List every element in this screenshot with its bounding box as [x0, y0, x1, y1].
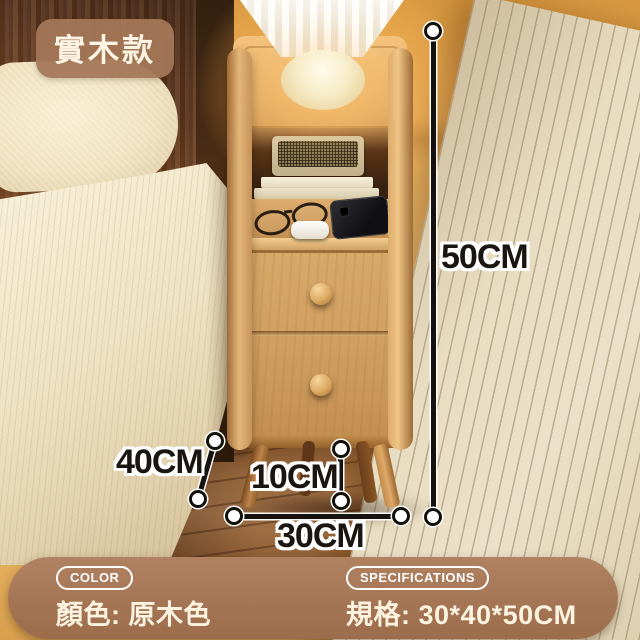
- dimension-label-leg-height: 10CM: [251, 460, 338, 494]
- dimension-endpoint-dot: [424, 508, 442, 526]
- book: [261, 177, 373, 188]
- dimension-line-height-50cm: [431, 31, 436, 517]
- dimension-label-depth: 40CM: [116, 445, 203, 479]
- nightstand-side-rail-right: [388, 48, 413, 450]
- nightstand-drawers: [246, 250, 394, 443]
- speaker-mesh-grille: [278, 141, 358, 167]
- dimension-endpoint-dot: [424, 22, 442, 40]
- footer-banner: COLOR 顏色: 原木色 SPECIFICATIONS 規格: 30*40*5…: [8, 557, 618, 639]
- dimension-endpoint-dot: [392, 507, 410, 525]
- drawer-divider: [246, 331, 394, 336]
- dimension-endpoint-dot: [206, 432, 224, 450]
- product-photo-scene: 50CM 40CM 10CM 30CM 實木款 COLOR 顏色: 原木色 SP…: [0, 0, 640, 640]
- color-value: 顏色: 原木色: [56, 593, 211, 632]
- earbuds-case: [291, 221, 329, 239]
- color-tag-pill: COLOR: [56, 566, 133, 590]
- drawer-knob-top: [310, 283, 332, 305]
- solid-wood-badge: 實木款: [36, 19, 174, 78]
- drawer-knob-bottom: [310, 374, 332, 396]
- smartphone: [329, 195, 391, 240]
- specs-tag-pill: SPECIFICATIONS: [346, 566, 489, 590]
- dimension-label-height: 50CM: [441, 240, 528, 274]
- specs-value: 規格: 30*40*50CM: [346, 593, 577, 632]
- dimension-endpoint-dot: [332, 440, 350, 458]
- dimension-label-width: 30CM: [277, 519, 364, 553]
- phone-camera: [339, 206, 350, 217]
- dimension-endpoint-dot: [225, 507, 243, 525]
- color-section: COLOR 顏色: 原木色: [56, 566, 211, 632]
- lamp-round-base: [281, 50, 365, 110]
- specs-section: SPECIFICATIONS 規格: 30*40*50CM: [346, 566, 577, 632]
- nightstand-side-rail-left: [227, 48, 252, 450]
- dimension-endpoint-dot: [189, 490, 207, 508]
